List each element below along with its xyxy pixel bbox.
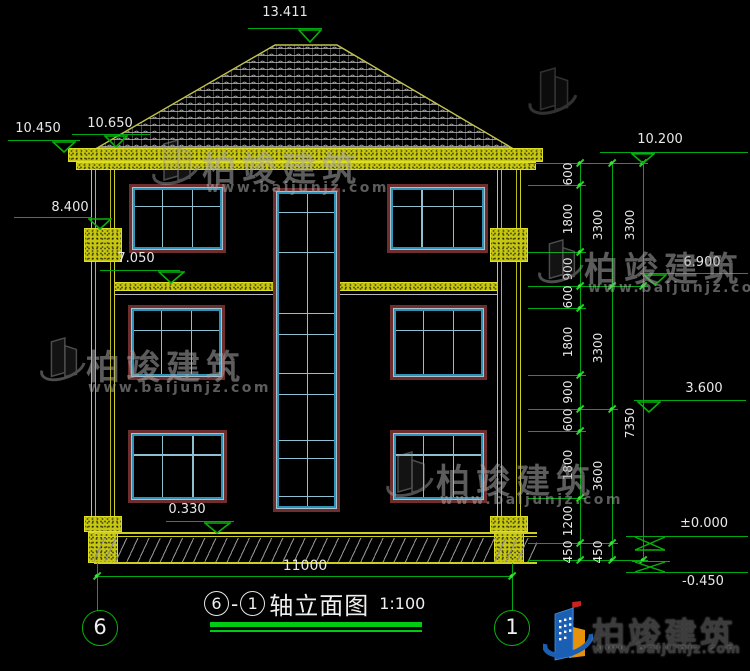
hipped-roof xyxy=(60,28,530,150)
elevation-zero: ±0.000 xyxy=(660,517,748,531)
window-mullion xyxy=(162,190,163,247)
window-transom xyxy=(393,206,482,207)
window-sash xyxy=(132,434,223,499)
window-mid-right xyxy=(390,305,487,380)
title-underline-thick xyxy=(210,622,422,627)
elevation-level2: 3.600 xyxy=(664,382,744,396)
dim-label: 450 xyxy=(561,522,575,582)
axis-bubble-left: 6 xyxy=(82,610,118,646)
plinth-top-line xyxy=(94,532,537,534)
elevation-triangle xyxy=(88,218,112,230)
elevation-triangle xyxy=(631,153,655,164)
watermark-logo-icon xyxy=(536,236,584,290)
elevation-triangle xyxy=(104,135,128,148)
title-underline-thin xyxy=(210,630,422,632)
dim-label: 450 xyxy=(591,522,605,582)
title-axis-end: 1 xyxy=(240,591,265,616)
elevation-ridge: 13.411 xyxy=(248,6,322,20)
extension-line xyxy=(528,163,648,164)
window-transom xyxy=(396,330,481,331)
window-transom xyxy=(135,206,220,207)
elevation-triangle xyxy=(204,522,231,534)
pilaster-right-base-cap xyxy=(490,516,528,532)
window-rail xyxy=(279,458,334,459)
drawing-title: 6 - 1 轴立面图 1:100 xyxy=(204,586,425,621)
watermark-url: www.baijunjz.com xyxy=(440,492,623,508)
watermark-url: www.baijunjz.com xyxy=(206,180,389,196)
axis-line-right xyxy=(512,563,513,611)
window-top-right xyxy=(387,184,488,253)
watermark-url: www.baijunjz.com xyxy=(588,280,750,296)
dim-label-bottom: 11000 xyxy=(255,559,355,573)
watermark-url: www.baijunjz.com xyxy=(88,380,271,396)
window-mullion xyxy=(192,436,193,497)
window-rail xyxy=(279,334,334,335)
elevation-eave-inner-left: 10.650 xyxy=(72,117,148,131)
elevation-line xyxy=(14,217,92,218)
elevation-eave-outer-left: 10.450 xyxy=(8,122,68,136)
brand-logo-icon xyxy=(543,600,593,664)
dim-label: 3300 xyxy=(591,318,605,378)
brand-logo-url: www.baijunjz.com xyxy=(592,642,741,657)
elevation-window-sill: 0.330 xyxy=(160,503,214,517)
window-bottom-left xyxy=(128,430,227,503)
axis-bubble-right: 1 xyxy=(494,610,530,646)
window-transom xyxy=(134,330,219,331)
window-mullion xyxy=(192,190,193,247)
window-rail xyxy=(279,496,334,497)
pilaster-left-base-cap xyxy=(84,516,122,532)
watermark-logo-icon xyxy=(526,64,578,122)
elevation-eave-right: 10.200 xyxy=(618,133,702,147)
window-rail xyxy=(279,394,334,395)
watermark-logo-icon xyxy=(38,334,86,388)
title-separator: - xyxy=(231,592,238,616)
title-name: 轴立面图 xyxy=(269,586,369,621)
window-sash xyxy=(394,309,483,376)
window-mullion xyxy=(453,311,454,374)
window-mullion xyxy=(453,190,454,247)
window-rail xyxy=(279,252,334,253)
elevation-triangle xyxy=(637,401,661,413)
elevation-site-ground: -0.450 xyxy=(662,575,744,589)
watermark-logo-icon xyxy=(150,136,200,192)
dim-label: 7350 xyxy=(623,393,637,453)
window-transom xyxy=(134,454,221,455)
plinth-top-line2 xyxy=(94,536,537,537)
pilaster-right-capital xyxy=(490,228,528,262)
axis-line-left xyxy=(97,563,98,611)
window-sash xyxy=(391,188,484,249)
window-mullion xyxy=(423,311,424,374)
dim-line-outer xyxy=(643,163,644,560)
elevation-floor-band: 7.050 xyxy=(102,252,170,266)
elevation-bowtie xyxy=(630,536,670,551)
elevation-line xyxy=(600,152,748,153)
window-sash xyxy=(133,188,222,249)
elevation-triangle xyxy=(158,271,185,284)
window-rail xyxy=(279,212,334,213)
watermark-logo-icon xyxy=(384,448,434,504)
window-mullion xyxy=(162,436,163,497)
window-rail xyxy=(279,373,334,374)
elevation-line xyxy=(626,572,748,573)
window-mullion xyxy=(421,190,422,247)
window-rail xyxy=(279,440,334,441)
elevation-capital: 8.400 xyxy=(44,201,96,215)
window-rail xyxy=(279,313,334,314)
cad-elevation-drawing: 13.411 10.450 10.650 8.400 7.050 0.330 xyxy=(0,0,750,671)
title-scale: 1:100 xyxy=(379,594,425,613)
stairwell-window xyxy=(273,188,340,512)
elevation-triangle xyxy=(52,141,76,153)
title-axis-start: 6 xyxy=(204,591,229,616)
elevation-triangle xyxy=(298,29,322,43)
dim-line-bottom xyxy=(97,576,513,577)
